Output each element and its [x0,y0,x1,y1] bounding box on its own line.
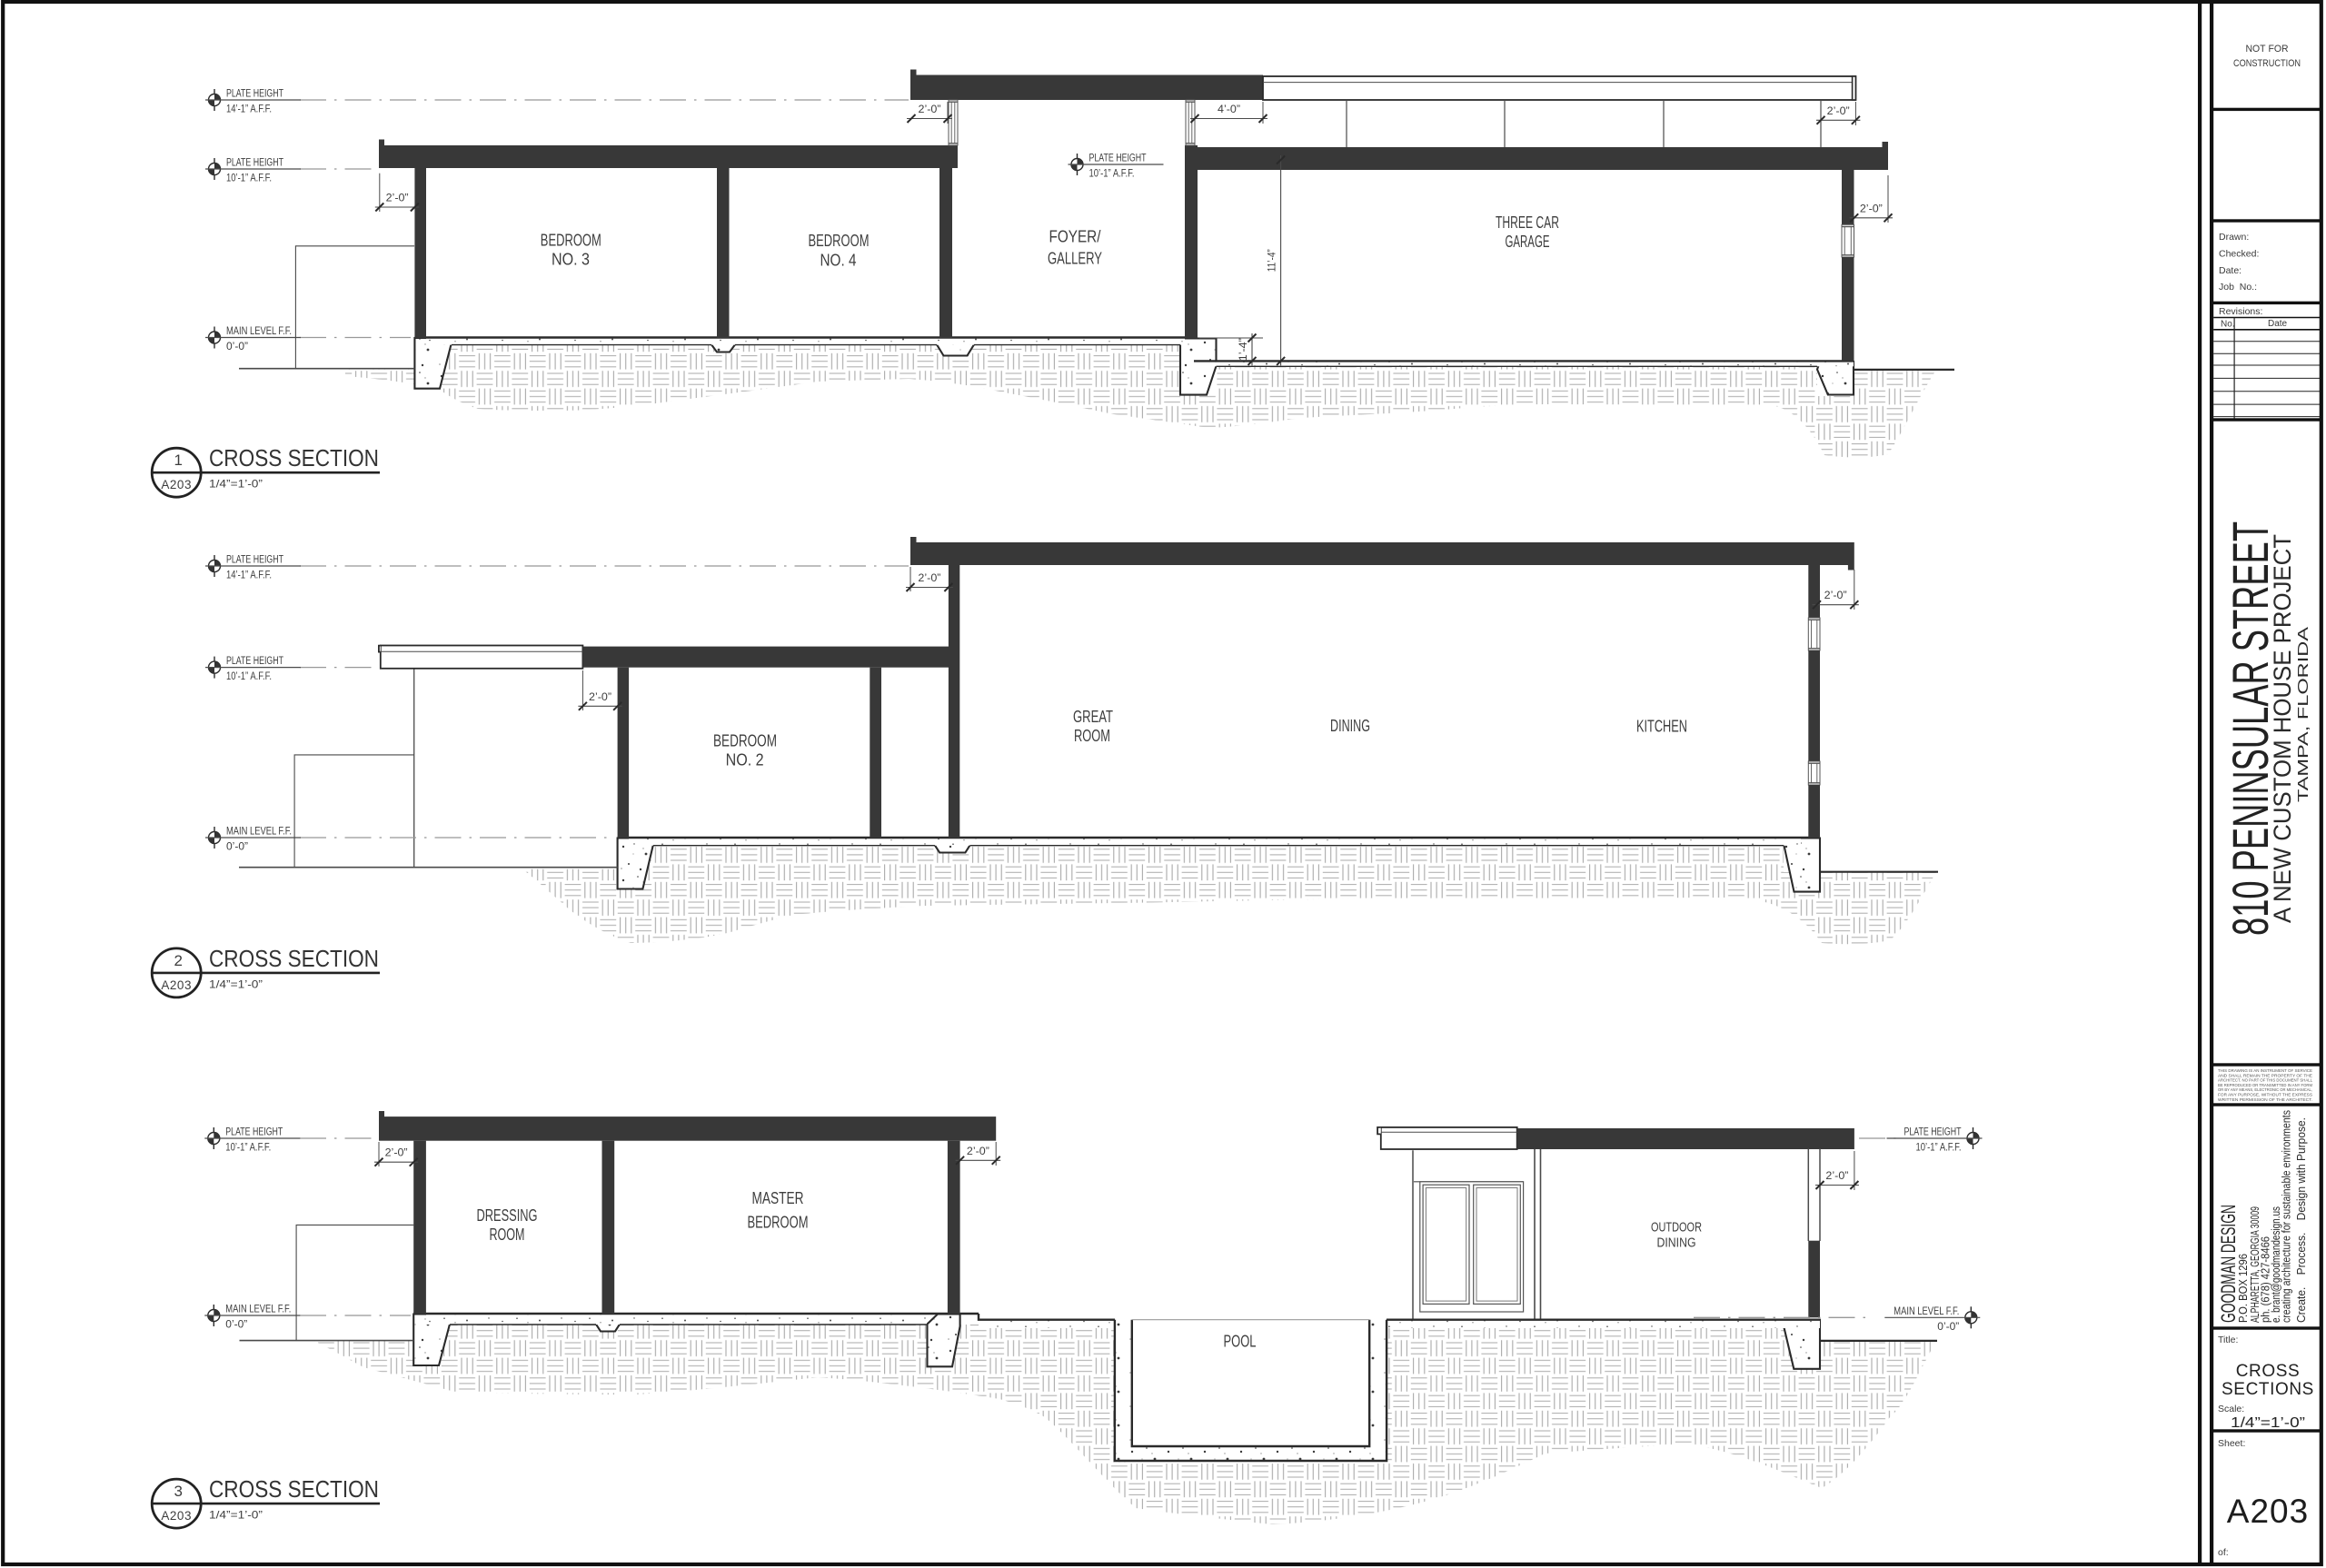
svg-text:10’-1” A.F.F.: 10’-1” A.F.F. [1916,1143,1962,1154]
svg-text:BEDROOM: BEDROOM [713,731,777,749]
svg-text:4’-0”: 4’-0” [1218,104,1240,115]
svg-text:KITCHEN: KITCHEN [1636,718,1687,736]
svg-text:2’-0”: 2’-0” [1825,1171,1848,1182]
svg-text:creating architecture for sust: creating architecture for sustainable en… [2281,1110,2293,1323]
svg-text:0’-0”: 0’-0” [226,842,248,853]
svg-text:A NEW CUSTOM HOUSE PROJECT: A NEW CUSTOM HOUSE PROJECT [2269,534,2296,923]
svg-text:MAIN LEVEL F.F.: MAIN LEVEL F.F. [226,827,292,838]
svg-text:A203: A203 [161,478,192,491]
svg-text:GREAT: GREAT [1073,708,1113,726]
svg-text:MAIN LEVEL F.F.: MAIN LEVEL F.F. [225,1305,291,1315]
svg-text:Sheet:: Sheet: [2218,1438,2245,1449]
svg-text:0’-0”: 0’-0” [1937,1322,1959,1333]
svg-text:10’-1” A.F.F.: 10’-1” A.F.F. [226,174,272,184]
svg-text:DINING: DINING [1330,717,1370,735]
svg-text:A203: A203 [2227,1493,2309,1530]
svg-text:10’-1” A.F.F.: 10’-1” A.F.F. [226,671,272,682]
svg-text:2’-0”: 2’-0” [918,573,940,584]
svg-text:2’-0”: 2’-0” [386,194,409,204]
svg-text:BEDROOM: BEDROOM [748,1214,809,1232]
svg-text:10’-1” A.F.F.: 10’-1” A.F.F. [225,1143,271,1154]
svg-text:MAIN LEVEL F.F.: MAIN LEVEL F.F. [1894,1306,1959,1317]
svg-text:A203: A203 [161,978,192,992]
svg-text:Title:: Title: [2218,1335,2238,1345]
svg-text:2’-0”: 2’-0” [967,1146,989,1157]
svg-text:THREE CAR: THREE CAR [1496,213,1559,232]
svg-text:CROSS SECTION: CROSS SECTION [209,1475,379,1503]
svg-text:GALLERY: GALLERY [1048,250,1102,268]
svg-text:THIS DRAWING IS AN INSTRUMENT: THIS DRAWING IS AN INSTRUMENT OF SERVICE [2218,1068,2312,1074]
svg-text:NO. 2: NO. 2 [726,751,764,769]
svg-text:10’-1” A.F.F.: 10’-1” A.F.F. [1089,169,1135,180]
svg-text:ARCHITECT. NO PART OF THIS DOC: ARCHITECT. NO PART OF THIS DOCUMENT SHAL… [2218,1078,2312,1084]
svg-text:BEDROOM: BEDROOM [809,232,870,250]
svg-text:MASTER: MASTER [752,1189,804,1207]
svg-text:2: 2 [174,952,182,969]
svg-text:Date:: Date: [2219,265,2242,276]
svg-text:OR BY ANY MEANS, ELECTRONIC OR: OR BY ANY MEANS, ELECTRONIC OR MECHANICA… [2218,1087,2312,1093]
svg-text:DINING: DINING [1657,1236,1696,1251]
svg-text:NO. 3: NO. 3 [552,250,590,268]
svg-text:CROSS SECTION: CROSS SECTION [209,945,379,972]
svg-text:Drawn:: Drawn: [2219,232,2249,243]
svg-text:TAMPA, FLORIDA: TAMPA, FLORIDA [2296,626,2311,802]
svg-text:1/4”=1’-0”: 1/4”=1’-0” [2231,1415,2305,1431]
svg-text:Create. Process. Design: Create. Process. Design with Purpose. [2294,1117,2308,1323]
svg-text:1/4”=1’-0”: 1/4”=1’-0” [209,478,263,491]
svg-text:1’-4”: 1’-4” [1238,338,1249,361]
svg-text:AND SHALL REMAIN THE PROPERTY: AND SHALL REMAIN THE PROPERTY OF THE [2218,1073,2312,1078]
svg-text:2’-0”: 2’-0” [1827,106,1850,117]
svg-text:Job No.:: Job No.: [2219,282,2257,293]
svg-text:2’-0”: 2’-0” [1824,590,1847,601]
svg-text:2’-0”: 2’-0” [589,692,611,703]
svg-text:of:: of: [2218,1547,2229,1558]
svg-text:0’-0”: 0’-0” [226,342,248,352]
svg-text:14’-1” A.F.F.: 14’-1” A.F.F. [226,571,272,581]
svg-text:DRESSING: DRESSING [477,1206,538,1225]
svg-text:14’-1” A.F.F.: 14’-1” A.F.F. [226,104,272,115]
svg-text:CROSS SECTION: CROSS SECTION [209,444,379,471]
svg-text:1: 1 [174,452,182,469]
svg-text:PLATE HEIGHT: PLATE HEIGHT [226,555,283,566]
svg-text:PLATE HEIGHT: PLATE HEIGHT [226,158,283,169]
svg-text:FOYER/: FOYER/ [1049,227,1101,245]
svg-text:SECTIONS: SECTIONS [2222,1380,2314,1399]
svg-text:11’-4”: 11’-4” [1267,249,1278,272]
svg-text:NO. 4: NO. 4 [820,251,857,269]
svg-text:NOT FOR: NOT FOR [2246,44,2289,55]
svg-text:PLATE HEIGHT: PLATE HEIGHT [225,1127,283,1138]
svg-text:2’-0”: 2’-0” [919,104,941,115]
svg-text:No.: No. [2221,320,2235,330]
svg-text:BEDROOM: BEDROOM [541,231,601,249]
svg-text:ROOM: ROOM [490,1226,525,1244]
svg-text:WRITTEN PERMISSION OF THE ARCH: WRITTEN PERMISSION OF THE ARCHITECT. [2218,1097,2312,1103]
svg-text:OUTDOOR: OUTDOOR [1651,1220,1702,1236]
svg-text:PLATE HEIGHT: PLATE HEIGHT [226,656,283,667]
svg-text:FOR ANY PURPOSE, WITHOUT THE E: FOR ANY PURPOSE, WITHOUT THE EXPRESS [2218,1093,2312,1098]
svg-text:2’-0”: 2’-0” [385,1148,408,1159]
svg-text:ROOM: ROOM [1074,727,1110,745]
svg-text:2’-0”: 2’-0” [1860,203,1883,214]
svg-text:Date: Date [2268,319,2288,329]
svg-text:POOL: POOL [1224,1333,1257,1351]
svg-text:PLATE HEIGHT: PLATE HEIGHT [226,89,283,100]
svg-text:PLATE HEIGHT: PLATE HEIGHT [1904,1127,1962,1138]
svg-text:Revisions:: Revisions: [2219,306,2262,317]
svg-text:CROSS: CROSS [2236,1362,2301,1381]
svg-text:A203: A203 [161,1509,192,1523]
svg-text:BE REPRODUCED OR TRANSMITTED I: BE REPRODUCED OR TRANSMITTED IN ANY FORM [2218,1083,2312,1088]
svg-text:Scale:: Scale: [2218,1404,2244,1414]
svg-text:CONSTRUCTION: CONSTRUCTION [2233,58,2301,69]
svg-text:1/4”=1’-0”: 1/4”=1’-0” [209,978,263,990]
svg-text:GARAGE: GARAGE [1506,233,1550,251]
svg-text:0’-0”: 0’-0” [225,1320,247,1331]
svg-text:3: 3 [174,1483,182,1500]
svg-text:1/4”=1’-0”: 1/4”=1’-0” [209,1509,263,1522]
svg-text:PLATE HEIGHT: PLATE HEIGHT [1089,154,1147,164]
svg-text:Checked:: Checked: [2219,248,2259,259]
svg-text:MAIN LEVEL F.F.: MAIN LEVEL F.F. [226,326,292,337]
